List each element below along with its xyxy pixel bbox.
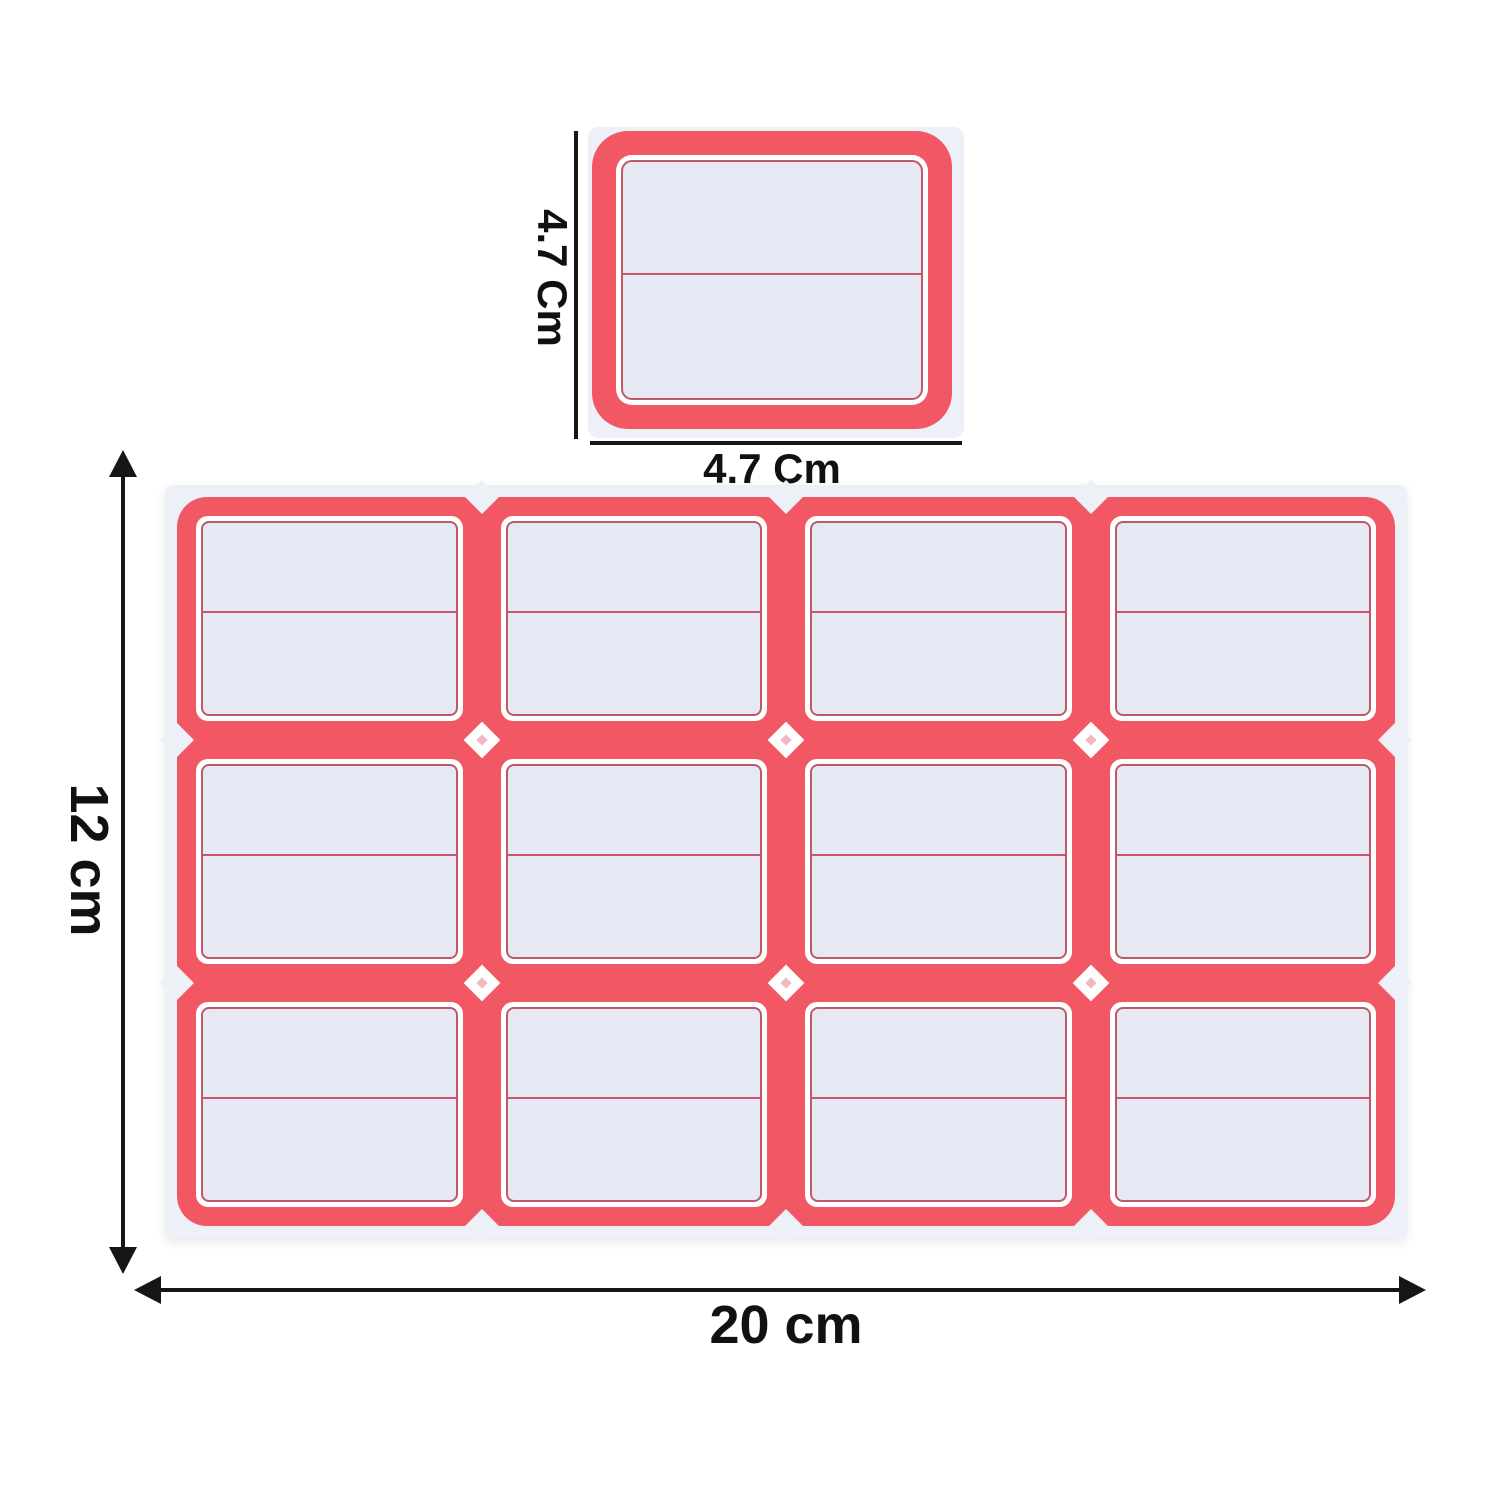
label-writing-area bbox=[501, 516, 768, 721]
label-divider-line bbox=[1117, 854, 1370, 856]
label-divider-line bbox=[203, 854, 456, 856]
sheet-height-line bbox=[121, 474, 125, 1250]
label-divider-line bbox=[623, 273, 921, 275]
label-divider-line bbox=[812, 611, 1065, 613]
label-divider-line bbox=[1117, 611, 1370, 613]
label-writing-area bbox=[805, 1002, 1072, 1207]
label-fill bbox=[1115, 521, 1372, 716]
arrow-up-icon bbox=[109, 450, 137, 477]
label-writing-area bbox=[616, 155, 928, 405]
single-label-height-text: 4.7 Cm bbox=[529, 198, 575, 358]
label-cell bbox=[482, 497, 787, 740]
label-sheet bbox=[165, 485, 1407, 1238]
label-divider-line bbox=[508, 611, 761, 613]
label-grid bbox=[177, 497, 1395, 1226]
label-writing-area bbox=[1110, 759, 1377, 964]
label-fill bbox=[1115, 1007, 1372, 1202]
label-writing-area bbox=[196, 759, 463, 964]
label-writing-area bbox=[501, 1002, 768, 1207]
single-label bbox=[592, 131, 952, 429]
label-cell bbox=[1091, 740, 1396, 983]
arrow-left-icon bbox=[134, 1276, 161, 1304]
label-divider-line bbox=[1117, 1097, 1370, 1099]
label-fill bbox=[201, 764, 458, 959]
label-fill bbox=[810, 521, 1067, 716]
label-writing-area bbox=[196, 516, 463, 721]
product-dimension-diagram: 4.7 Cm 4.7 Cm 12 cm 20 cm bbox=[0, 0, 1500, 1500]
label-fill bbox=[506, 764, 763, 959]
label-writing-area bbox=[196, 1002, 463, 1207]
label-cell bbox=[786, 497, 1091, 740]
label-fill bbox=[201, 521, 458, 716]
label-fill bbox=[621, 160, 923, 400]
label-divider-line bbox=[203, 611, 456, 613]
arrow-down-icon bbox=[109, 1247, 137, 1274]
label-cell bbox=[177, 497, 482, 740]
label-fill bbox=[201, 1007, 458, 1202]
sheet-width-text: 20 cm bbox=[636, 1298, 936, 1352]
label-cell bbox=[1091, 983, 1396, 1226]
label-cell bbox=[1091, 497, 1396, 740]
sheet-height-text: 12 cm bbox=[60, 780, 116, 940]
label-fill bbox=[810, 1007, 1067, 1202]
label-fill bbox=[810, 764, 1067, 959]
label-cell bbox=[786, 740, 1091, 983]
label-writing-area bbox=[1110, 1002, 1377, 1207]
label-cell bbox=[177, 983, 482, 1226]
label-divider-line bbox=[812, 854, 1065, 856]
label-cell bbox=[786, 983, 1091, 1226]
label-cell bbox=[482, 983, 787, 1226]
label-divider-line bbox=[812, 1097, 1065, 1099]
label-cell bbox=[177, 740, 482, 983]
label-writing-area bbox=[1110, 516, 1377, 721]
label-fill bbox=[1115, 764, 1372, 959]
sheet-width-line bbox=[158, 1288, 1402, 1292]
label-divider-line bbox=[508, 854, 761, 856]
label-writing-area bbox=[805, 759, 1072, 964]
label-fill bbox=[506, 521, 763, 716]
arrow-right-icon bbox=[1399, 1276, 1426, 1304]
label-fill bbox=[506, 1007, 763, 1202]
label-writing-area bbox=[805, 516, 1072, 721]
label-cell bbox=[482, 740, 787, 983]
label-writing-area bbox=[501, 759, 768, 964]
label-divider-line bbox=[508, 1097, 761, 1099]
label-divider-line bbox=[203, 1097, 456, 1099]
